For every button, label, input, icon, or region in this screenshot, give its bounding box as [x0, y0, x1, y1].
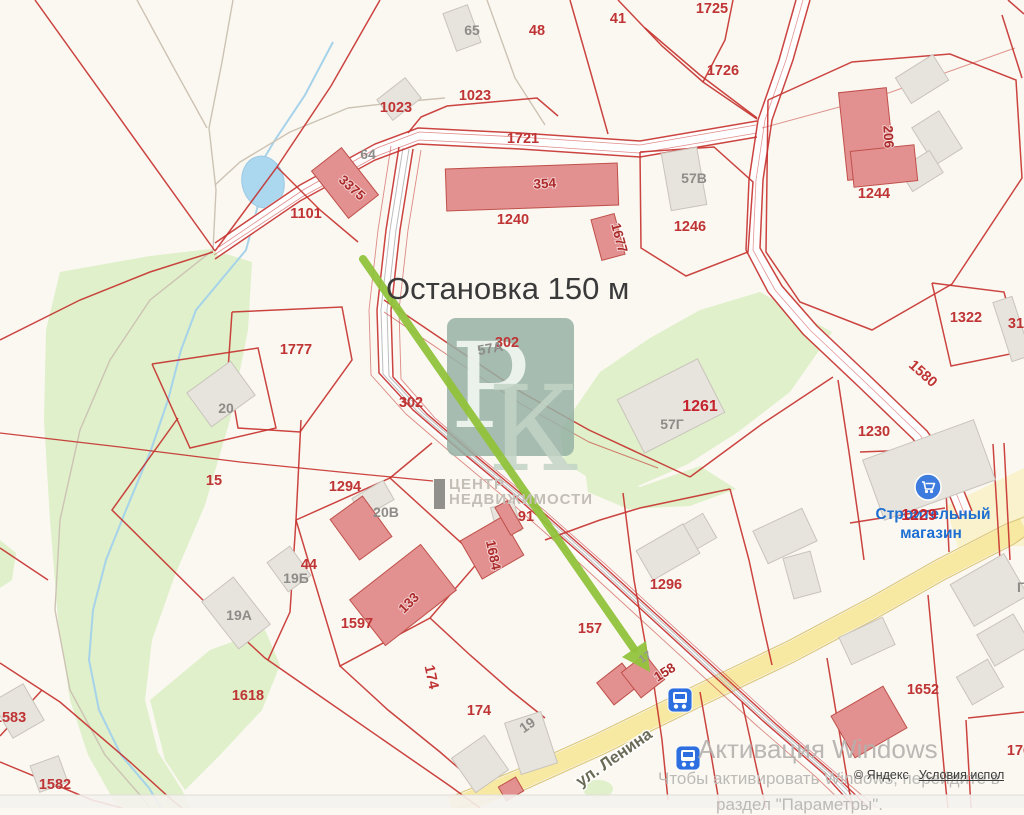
parcel-boundary — [268, 420, 301, 660]
parcel-label: 65 — [464, 22, 480, 38]
parcel-label: 1618 — [232, 688, 264, 704]
parcel-label: 20 — [218, 400, 234, 416]
parcel-boundary — [340, 666, 470, 778]
parcel-label: 19Б — [283, 570, 309, 586]
parcel-boundary — [730, 489, 772, 665]
parcel-label: 1229 — [901, 507, 937, 524]
parcel-boundary — [968, 712, 1024, 718]
parcel-label: 1725 — [696, 1, 728, 17]
parcel-label: 48 — [529, 23, 545, 39]
parcel-boundary — [570, 0, 608, 134]
parcel-label: 1296 — [650, 577, 682, 593]
parcel-boundary — [390, 443, 432, 478]
parcel-label: 1597 — [341, 616, 373, 632]
org-line1: ЦЕНТР — [449, 477, 593, 492]
trail-path — [209, 128, 216, 250]
parcel-label: 64 — [360, 146, 376, 162]
building-gray — [895, 55, 948, 104]
parcel-label: 174 — [421, 664, 442, 691]
windows-activation-line3: раздел "Параметры". — [716, 795, 883, 815]
parcel-label: 1580 — [905, 357, 940, 390]
cadastral-map-screenshot: { "annotation": {"text": "Остановка 150 … — [0, 0, 1024, 808]
parcel-boundary — [645, 28, 757, 118]
parcel-label: 1582 — [39, 777, 71, 793]
store-icon-bg[interactable] — [915, 474, 941, 500]
parcel-label: 302 — [399, 395, 423, 411]
parcel-label: 57Г — [660, 416, 684, 432]
parcel-boundary — [35, 0, 215, 251]
yandex-copyright: © Яндекс — [854, 768, 909, 782]
parcel-label: 1023 — [459, 88, 491, 104]
map-canvas[interactable]: РК 1725414865102310231721172664337535420… — [0, 0, 1024, 808]
bus-wheel — [690, 762, 694, 766]
org-line2: НЕДВИЖИМОСТИ — [449, 492, 593, 507]
org-building-icon — [434, 479, 445, 509]
distance-annotation: Остановка 150 м — [386, 271, 629, 307]
parcel-label: 19А — [226, 607, 252, 623]
terms-of-use-link[interactable]: Условия испол — [919, 768, 1005, 782]
parcel-boundary — [618, 0, 757, 119]
realty-org-watermark: ЦЕНТР НЕДВИЖИМОСТИ — [434, 477, 593, 509]
parcel-label: 1023 — [380, 100, 412, 116]
bus-stop-icon[interactable] — [676, 746, 700, 770]
trail-path — [209, 0, 233, 128]
bus-wheel — [682, 704, 686, 708]
parcel-label: 1726 — [707, 63, 739, 79]
parcel-boundary — [1008, 0, 1024, 14]
bus-windshield — [675, 694, 685, 699]
parcel-label: 1261 — [682, 398, 718, 415]
bus-windshield — [683, 752, 693, 757]
parcel-label: Г — [1017, 579, 1024, 595]
parcel-label: 157 — [578, 621, 602, 637]
trail-path — [487, 0, 545, 125]
parcel-label: 1230 — [858, 424, 890, 440]
parcel-label: 1322 — [950, 310, 982, 326]
parcel-label: 31 — [1008, 316, 1024, 332]
parcel-label: 1246 — [674, 219, 706, 235]
map-attribution: © Яндекс Условия испол — [854, 768, 1004, 782]
parcel-label: 1294 — [329, 479, 361, 495]
parcel-label: 15 — [206, 473, 222, 489]
bus-wheel — [682, 762, 686, 766]
building-red — [445, 163, 618, 211]
parcel-label: 1101 — [290, 206, 321, 222]
parcel-label: 1240 — [497, 212, 529, 228]
parcel-label: 354 — [533, 175, 557, 191]
cart-wheel — [925, 490, 928, 493]
green-area — [0, 540, 16, 588]
parcel-boundary — [766, 54, 1022, 330]
parcel-label: 1652 — [907, 682, 939, 698]
building-gray — [977, 614, 1024, 666]
parcel-label: 176 — [1007, 743, 1024, 759]
building-gray — [783, 551, 821, 599]
building-red — [850, 145, 917, 187]
parcel-boundary — [838, 380, 864, 560]
parcel-label: 57В — [681, 170, 707, 186]
parcel-boundary — [1002, 15, 1022, 78]
parcel-label: 1777 — [280, 342, 312, 358]
parcel-label: 1583 — [0, 710, 26, 726]
bus-stop-icon[interactable] — [668, 688, 692, 712]
parcel-label: 1244 — [858, 186, 890, 202]
parcel-label: 91 — [518, 509, 534, 525]
cart-wheel — [930, 490, 933, 493]
trail-path — [137, 0, 207, 128]
windows-activation-title: Активация Windows — [698, 734, 938, 765]
parcel-label: магазин — [900, 525, 962, 542]
building-gray — [956, 659, 1003, 705]
parcel-label: 174 — [467, 703, 491, 719]
parcel-label: 20В — [373, 504, 399, 520]
parcel-label: 206 — [880, 125, 896, 149]
parcel-label: 41 — [610, 11, 626, 27]
bus-wheel — [674, 704, 678, 708]
store-icon[interactable] — [915, 474, 941, 500]
parcel-label: 1721 — [507, 131, 539, 147]
